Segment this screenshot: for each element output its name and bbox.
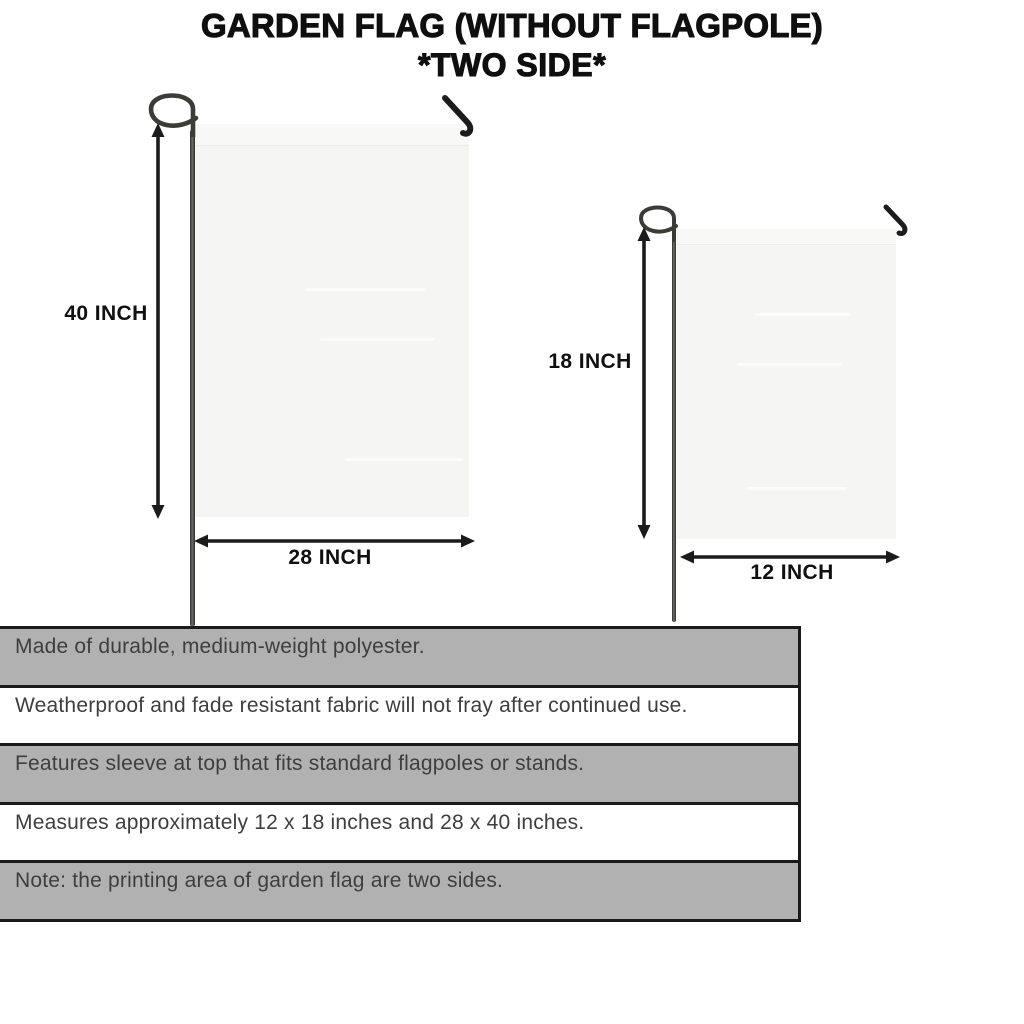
- flag-sleeve-large: [195, 124, 469, 146]
- garden-flag-infographic: GARDEN FLAG (WITHOUT FLAGPOLE) *TWO SIDE…: [0, 0, 1024, 1024]
- height-label-small: 18 INCH: [520, 350, 660, 374]
- feature-row-material: Made of durable, medium-weight polyester…: [0, 629, 798, 688]
- flag-crease: [747, 487, 847, 490]
- flag-sleeve-small: [677, 229, 896, 245]
- title-line-1: GARDEN FLAG (WITHOUT FLAGPOLE): [0, 6, 1024, 46]
- hanger-hook-icon-small: [882, 204, 912, 238]
- flag-pole-large: [190, 130, 195, 626]
- features-table: Made of durable, medium-weight polyester…: [0, 626, 801, 922]
- title-line-2: *TWO SIDE*: [0, 46, 1024, 84]
- flag-crease: [345, 458, 463, 461]
- width-label-large: 28 INCH: [260, 546, 400, 570]
- flag-crease: [305, 288, 425, 291]
- page-title: GARDEN FLAG (WITHOUT FLAGPOLE) *TWO SIDE…: [0, 6, 1024, 84]
- feature-row-sleeve: Features sleeve at top that fits standar…: [0, 746, 798, 805]
- feature-row-weatherproof: Weatherproof and fade resistant fabric w…: [0, 688, 798, 747]
- flag-crease: [320, 338, 435, 341]
- feature-row-measurements: Measures approximately 12 x 18 inches an…: [0, 805, 798, 864]
- hanger-hook-icon-large: [440, 94, 478, 140]
- flag-pole-small: [672, 236, 676, 622]
- flag-cloth-large: [195, 124, 469, 517]
- height-arrow-small: [636, 226, 652, 540]
- flag-crease: [755, 313, 850, 316]
- flag-crease: [737, 363, 842, 366]
- flag-cloth-small: [677, 229, 896, 539]
- width-label-small: 12 INCH: [722, 561, 862, 585]
- height-label-large: 40 INCH: [50, 302, 162, 326]
- feature-row-note: Note: the printing area of garden flag a…: [0, 863, 798, 919]
